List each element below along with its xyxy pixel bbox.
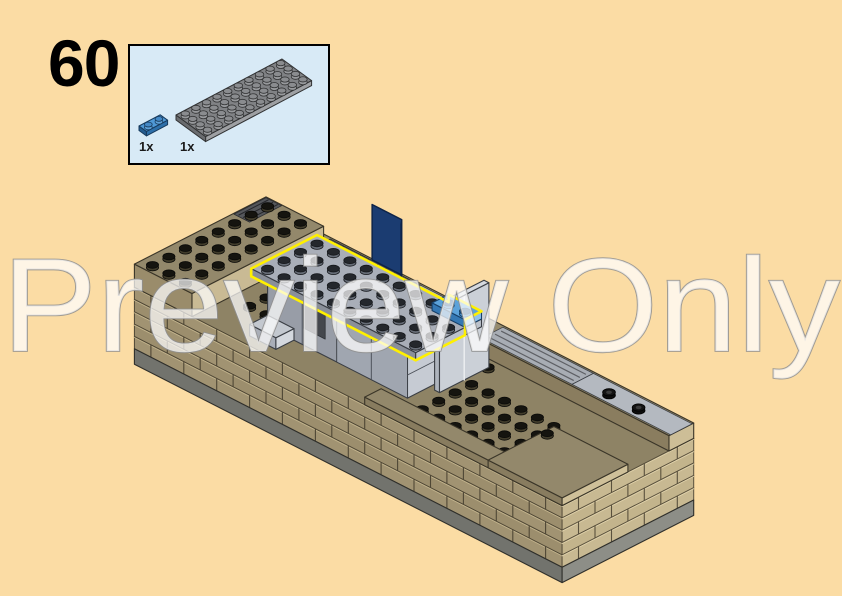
model-isometric-view (0, 0, 842, 596)
instruction-page: 60 1x 1x Preview Only (0, 0, 842, 596)
